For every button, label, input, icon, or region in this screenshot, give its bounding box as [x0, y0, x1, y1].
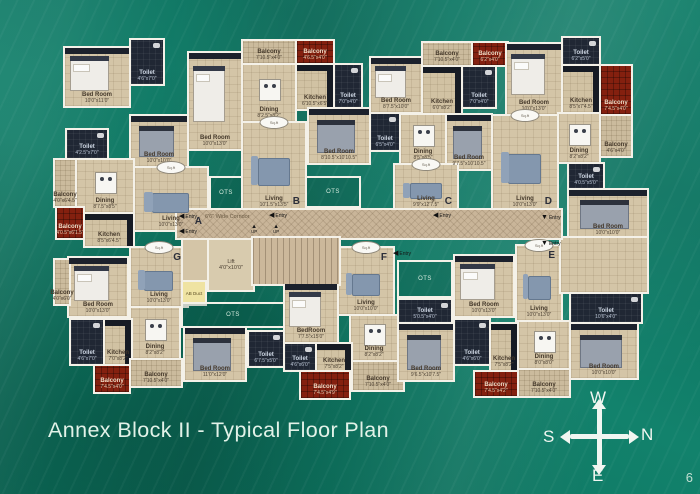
- unit-letter-d: D: [545, 196, 552, 207]
- entry-label: Entry: [549, 241, 561, 247]
- room-f-kitchen: Kitchen7'5"x8'2": [317, 344, 351, 372]
- room-b-bedroom-2: Bed Room8'10.5"x10'10.5": [309, 109, 369, 163]
- room-e-living: Living10'0"x13'0"ESq.ft: [517, 246, 561, 320]
- room-dimension: 4'2.5"x7'0": [75, 150, 98, 156]
- room-b-bedroom-1: Bed Room10'0"x13'0": [189, 53, 241, 149]
- unit-letter-f: F: [381, 252, 387, 263]
- core-lobby: [183, 240, 207, 280]
- compass-horizontal-bar: [570, 434, 629, 439]
- room-a-dining: Dining8'7.5"x8'5": [77, 160, 133, 212]
- room-dimension: 4'6"x7'0": [137, 76, 156, 82]
- room-dimension: 8'2"x8'2": [145, 350, 164, 356]
- dining-table-icon: [413, 125, 435, 147]
- room-dimension: 4'0.5"x6'1.5": [56, 230, 83, 236]
- room-a-balcony-1: Balcony4'0"x6'4.5": [55, 160, 75, 206]
- area-stamp: Sq.ft: [260, 116, 289, 129]
- room-c-balcony-1: Balcony7'10.5"x4'0": [423, 43, 471, 65]
- lift-dim: 4'0"x10'0": [219, 265, 243, 271]
- room-dimension: 7'4.5"x4'0": [100, 384, 123, 390]
- room-dimension: 6'0"x8'2": [432, 105, 451, 111]
- stairs-up-mark-1: ▲UP: [251, 224, 257, 235]
- room-e-toilet-1: Toilet4'6"x6'0": [455, 320, 489, 364]
- room-d-balcony-1: Balcony7'4.5"x4'0": [601, 66, 631, 114]
- room-dimension: 10'1.5"x13'5": [260, 202, 289, 208]
- room-g-dining: Dining8'2"x8'2": [131, 308, 179, 358]
- room-b-dining: Dining8'2.5"x8'2": [243, 65, 295, 121]
- room-dimension: 7'4.5"x4'0": [604, 106, 627, 112]
- page-title: Annex Block II - Typical Floor Plan: [48, 418, 389, 443]
- room-g-bedroom-1: Bed Room10'0"x13'0": [69, 258, 127, 316]
- ab-duct: AB Duct: [183, 282, 205, 304]
- room-g-bedroom-2: Bed Room11'0"x12'0": [185, 328, 245, 380]
- dining-table-icon: [534, 331, 556, 353]
- area-stamp: Sq.ft: [511, 109, 540, 122]
- room-a-living: Living10'0"x13'0"ASq.ft: [135, 168, 207, 230]
- room-d-bedroom-1: Bed Room10'0"x13'0": [507, 44, 561, 114]
- room-d-toilet-2: Toilet4'0.5"x5'0": [569, 164, 603, 188]
- bed-icon: [70, 56, 109, 90]
- room-dimension: 4'6"x6'0": [290, 362, 309, 368]
- room-d-living: Living10'0"x13'0"DSq.ft: [493, 116, 557, 210]
- unit-letter-e: E: [548, 250, 555, 261]
- entry-label: Entry: [185, 229, 197, 235]
- room-f-toilet-1: Toilet6'7.5"x5'0": [249, 332, 283, 366]
- room-dimension: 9'9"x12'7.5": [413, 202, 439, 208]
- arrow-left-icon: ◀: [269, 212, 274, 219]
- compass-arrow-right-icon: [629, 430, 639, 444]
- room-g-living: Living10'0"x13'0"GSq.ft: [131, 248, 187, 306]
- compass-west-label: W: [590, 388, 606, 408]
- ots-cutout-3: OTS: [183, 304, 283, 326]
- room-g-balcony-2: Balcony7'4.5"x4'0": [95, 366, 129, 392]
- entry-arrow-unit-c: ◀Entry: [433, 212, 451, 219]
- room-dimension: 4'6"x7'0": [77, 356, 96, 362]
- dining-table-icon: [259, 79, 281, 101]
- room-dimension: 7'10.5"x4'0": [143, 378, 169, 384]
- room-f-toilet-3: Toilet5'0.5"x4'0": [399, 300, 451, 322]
- room-dimension: 10'0"x13'0": [86, 308, 111, 314]
- room-dimension: 6'7.5"x5'0": [254, 358, 277, 364]
- area-stamp: Sq.ft: [145, 241, 174, 254]
- room-c-toilet-2: Toilet6'5"x4'0": [371, 114, 399, 150]
- room-b-kitchen: Kitchen6'10.5"x6'5": [297, 65, 333, 109]
- room-c-toilet-1: Toilet7'0"x4'0": [463, 67, 495, 107]
- room-a-bedroom-1: Bed Room10'0"x11'0": [65, 48, 129, 106]
- room-dimension: 6'10.5"x6'5": [302, 101, 328, 107]
- staircase: [253, 238, 339, 284]
- room-f-balcony-2: Balcony7'10.5"x4'0": [353, 362, 403, 390]
- room-dimension: 7'5"x8'2": [494, 362, 513, 368]
- arrow-left-icon: ◀: [393, 250, 398, 257]
- room-dimension: 10'0"x11'0": [85, 98, 109, 104]
- ots-cutout-2: OTS: [307, 178, 359, 206]
- entry-arrow-unit-d: ▼Entry: [541, 214, 561, 221]
- room-dimension: 9'6.5"x10'7.5": [411, 372, 441, 378]
- up-label: UP: [273, 230, 279, 235]
- room-dimension: 7'0"x4'0": [469, 99, 488, 105]
- room-e-toilet-2: Toilet10'6"x4'0": [571, 294, 641, 322]
- sofa-icon: [152, 193, 189, 214]
- ots-cutout-1: OTS: [211, 178, 241, 208]
- room-f-balcony-1: Balcony7'4.5"x4'9": [301, 372, 349, 398]
- arrow-left-icon: ◀: [179, 228, 184, 235]
- room-b-living: Living10'1.5"x13'5"BSq.ft: [243, 123, 305, 210]
- room-dimension: 7'0"x4'0": [338, 99, 357, 105]
- entry-label: Entry: [275, 213, 287, 219]
- sofa-icon: [352, 274, 380, 296]
- room-dimension: 10'0"x10'0": [596, 230, 621, 236]
- arrow-down-icon: ▼: [541, 240, 548, 247]
- room-b-toilet-1: Toilet7'0"x4'0": [335, 65, 361, 107]
- dining-table-icon: [569, 124, 591, 146]
- area-stamp: Sq.ft: [412, 158, 441, 171]
- entry-arrow-unit-f: ◀Entry: [393, 250, 411, 257]
- corridor: 6'6" Wide Corridor: [177, 210, 561, 238]
- stairs-up-mark-2: ▲UP: [273, 224, 279, 235]
- room-e-dining: Dining8'0"x8'0": [519, 322, 569, 368]
- room-e-kitchen: Kitchen7'5"x8'2": [491, 324, 517, 370]
- room-f-bedroom-2: Bed Room9'6.5"x10'7.5": [399, 324, 453, 380]
- arrow-left-icon: ◀: [179, 213, 184, 220]
- room-dimension: 7'0"x8'2": [108, 356, 127, 362]
- entry-arrow-unit-a: ◀Entry: [179, 213, 197, 220]
- page-number: 6: [686, 470, 693, 485]
- room-dimension: 9'7.5"x10'10.5": [453, 161, 486, 167]
- entry-arrow-unit-e: ▼Entry: [541, 240, 561, 247]
- room-c-living: Living9'9"x12'7.5"CSq.ft: [395, 165, 457, 210]
- room-dimension: 10'0"x13'0": [203, 141, 228, 147]
- entry-label: Entry: [439, 213, 451, 219]
- ots-cutout-4: OTS: [399, 262, 451, 296]
- corridor-label: 6'6" Wide Corridor: [205, 214, 250, 220]
- unit-letter-g: G: [173, 252, 181, 263]
- room-a-toilet-2: Toilet4'2.5"x7'0": [67, 130, 107, 158]
- room-f-living: Living10'0"x10'0"FSq.ft: [339, 248, 393, 314]
- entry-label: Entry: [399, 251, 411, 257]
- room-dimension: 8'0"x8'0": [534, 360, 553, 366]
- room-dimension: 10'0"x13'0": [472, 308, 497, 314]
- room-dimension: 7'10.5"x4'0": [531, 388, 557, 394]
- unit-letter-c: C: [445, 196, 452, 207]
- room-e-hall: [561, 238, 647, 292]
- room-dimension: 8'2"x8'2": [364, 352, 383, 358]
- room-a-toilet-1: Toilet4'6"x7'0": [131, 40, 163, 84]
- room-dimension: 10'0"x10'0": [592, 370, 617, 376]
- room-a-kitchen: Kitchen8'5"x6'4.5": [85, 214, 133, 246]
- room-dimension: 11'0"x12'0": [203, 372, 227, 378]
- entry-arrow-unit-g: ◀Entry: [179, 228, 197, 235]
- dining-table-icon: [145, 319, 167, 341]
- room-a-bedroom-2: Bed Room10'0"x10'0": [131, 116, 187, 166]
- sofa-icon: [258, 158, 290, 186]
- room-f-dining: Dining8'2"x8'2": [351, 316, 397, 360]
- room-dimension: 8'2"x8'2": [569, 154, 588, 160]
- dining-table-icon: [95, 172, 117, 194]
- room-dimension: 7'10.5"x4'0": [434, 57, 460, 63]
- compass-east-label: E: [592, 466, 603, 486]
- bed-icon: [289, 292, 321, 326]
- sofa-icon: [144, 271, 173, 290]
- compass-south-label: S: [543, 427, 554, 447]
- room-d-dining: Dining8'2"x8'2": [559, 114, 599, 162]
- room-e-balcony-1: Balcony7'4.5"x4'2": [475, 372, 517, 396]
- room-b-balcony-2: Balcony4'6.5"x4'0": [297, 41, 333, 63]
- room-dimension: 4'0"x6'4.5": [53, 198, 76, 204]
- room-f-bedroom-1: BedRoom7'7.5"x15'0": [285, 284, 337, 342]
- room-dimension: 4'6.5"x4'0": [303, 55, 326, 61]
- room-dimension: 10'0"x10'0": [354, 306, 379, 312]
- room-dimension: 6'2"x5'0": [571, 56, 590, 62]
- room-dimension: 7'5"x8'2": [324, 364, 343, 370]
- room-g-balcony-1: Balcony4'0"x6'0": [55, 260, 69, 304]
- room-e-balcony-2: Balcony7'10.5"x4'0": [519, 370, 569, 396]
- entry-label: Entry: [185, 214, 197, 220]
- up-label: UP: [251, 230, 257, 235]
- arrow-down-icon: ▼: [541, 214, 548, 221]
- room-g-balcony-3: Balcony7'10.5"x4'0": [131, 360, 181, 386]
- room-dimension: 8'5"x7'4.5": [569, 104, 592, 110]
- room-b-balcony-1: Balcony7'10.5"x4'0": [243, 41, 295, 63]
- room-d-toilet-1: Toilet6'2"x5'0": [563, 38, 599, 64]
- room-dimension: 7'7.5"x15'0": [298, 334, 324, 340]
- room-e-bedroom-1: Bed Room10'0"x13'0": [455, 256, 513, 316]
- room-dimension: 4'6"x6'0": [462, 356, 481, 362]
- compass-rose: W N S E: [541, 394, 657, 482]
- entry-arrow-unit-b: ◀Entry: [269, 212, 287, 219]
- room-dimension: 5'0.5"x4'0": [413, 314, 436, 320]
- room-c-dining: Dining8'5"x8'5": [401, 115, 445, 163]
- bed-icon: [74, 266, 110, 300]
- room-g-toilet-1: Toilet4'6"x7'0": [71, 320, 103, 364]
- dining-table-icon: [364, 324, 386, 346]
- chalkboard-background: Bed Room10'0"x11'0"Toilet4'6"x7'0"Bed Ro…: [0, 0, 700, 494]
- room-dimension: 4'0"x6'0": [52, 296, 71, 302]
- room-dimension: 10'6"x4'0": [595, 314, 617, 320]
- room-a-balcony-2: Balcony4'0.5"x6'1.5": [57, 208, 83, 238]
- entry-label: Entry: [549, 215, 561, 221]
- bed-icon: [193, 66, 225, 122]
- bed-icon: [460, 264, 496, 300]
- room-dimension: 6'5"x4'0": [375, 142, 394, 148]
- room-dimension: 7'4.5"x4'9": [313, 390, 336, 396]
- room-dimension: 7'10.5"x4'0": [256, 55, 282, 61]
- bed-icon: [375, 66, 406, 98]
- arrow-left-icon: ◀: [433, 212, 438, 219]
- room-dimension: 7'4.5"x4'2": [484, 388, 507, 394]
- area-stamp: Sq.ft: [157, 161, 186, 174]
- room-dimension: 4'6"x4'0": [606, 148, 625, 154]
- floor-plan: Bed Room10'0"x11'0"Toilet4'6"x7'0"Bed Ro…: [55, 8, 650, 400]
- room-dimension: 10'0"x13'0": [527, 312, 552, 318]
- compass-north-label: N: [641, 425, 653, 445]
- room-f-toilet-2: Toilet4'6"x6'0": [285, 344, 315, 370]
- room-d-kitchen: Kitchen8'5"x7'4.5": [563, 66, 599, 112]
- room-dimension: 10'0"x13'0": [147, 298, 172, 304]
- room-dimension: 8'5"x6'4.5": [97, 238, 120, 244]
- room-dimension: 8'7.5"x8'5": [93, 204, 116, 210]
- room-dimension: 6'2"x4'0": [480, 57, 499, 63]
- sofa-icon: [528, 276, 551, 300]
- bed-icon: [407, 335, 441, 369]
- unit-letter-b: B: [293, 196, 300, 207]
- room-dimension: 10'0"x13'0": [513, 202, 538, 208]
- room-d-bedroom-2: Bed Room10'0"x10'0": [569, 190, 647, 238]
- room-dimension: 4'0.5"x5'0": [574, 180, 597, 186]
- room-c-bedroom-2: Bed Room9'7.5"x10'10.5": [447, 115, 491, 169]
- room-c-bedroom-1: Bed Room8'7.5"x10'0": [371, 58, 421, 112]
- sofa-icon: [508, 154, 541, 184]
- room-c-kitchen: Kitchen6'0"x8'2": [423, 67, 461, 113]
- area-stamp: Sq.ft: [352, 241, 381, 254]
- bed-icon: [511, 54, 544, 95]
- room-c-balcony-2: Balcony6'2"x4'0": [473, 43, 507, 65]
- room-dimension: 8'7.5"x10'0": [383, 104, 409, 110]
- room-e-bedroom-2: Bed Room10'0"x10'0": [571, 324, 637, 378]
- compass-arrow-left-icon: [560, 430, 570, 444]
- lift: Lift 4'0"x10'0": [209, 240, 253, 290]
- room-dimension: 8'10.5"x10'10.5": [321, 155, 357, 161]
- room-g-kitchen: Kitchen7'0"x8'2": [105, 320, 131, 364]
- room-dimension: 7'10.5"x4'0": [365, 382, 391, 388]
- room-d-balcony-2: Balcony4'6"x4'0": [601, 116, 631, 156]
